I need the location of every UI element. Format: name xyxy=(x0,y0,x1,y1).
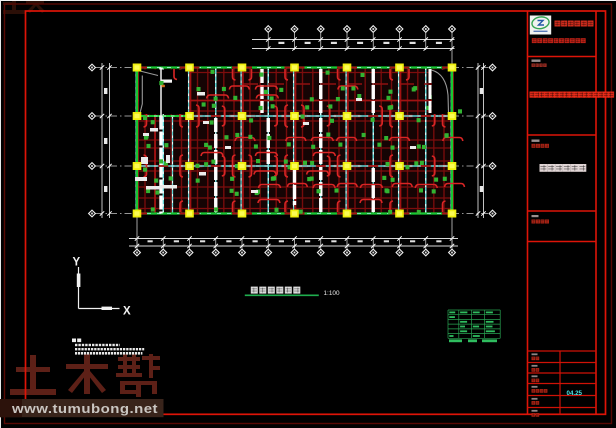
svg-text:04.25: 04.25 xyxy=(567,390,583,397)
svg-text:Y: Y xyxy=(73,257,81,269)
svg-text:1:100: 1:100 xyxy=(324,290,340,297)
svg-text:X: X xyxy=(123,306,131,318)
svg-text:www.tumubong.net: www.tumubong.net xyxy=(11,401,158,416)
